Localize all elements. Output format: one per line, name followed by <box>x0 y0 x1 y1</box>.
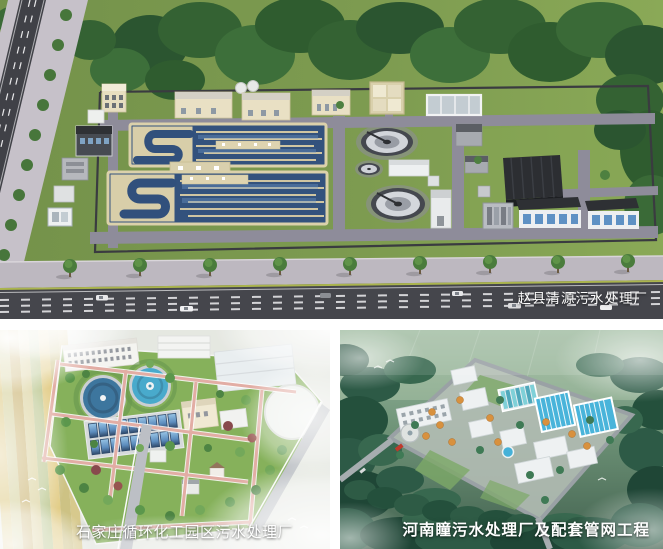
oxidation-basin-2 <box>108 172 327 224</box>
br-round-pool <box>503 447 514 458</box>
oxidation-basin-1 <box>130 124 326 166</box>
render-henan-plant: 河南瞳污水处理厂及配套管网工程 <box>340 330 663 549</box>
caption-shijiazhuang-plant: 石家庄循环化工园区污水处理厂 <box>76 521 293 542</box>
br-blue-basin-1 <box>535 392 575 432</box>
br-blue-basin-2 <box>574 398 618 437</box>
render-zhaoxian-plant: 赵县清源污水处理厂 <box>0 0 663 319</box>
flat-settling-basins <box>427 95 481 115</box>
project-renderings-collage: 赵县清源污水处理厂 <box>0 0 663 549</box>
caption-henan-plant: 河南瞳污水处理厂及配套管网工程 <box>402 518 650 540</box>
grid-tank <box>370 82 404 114</box>
render-shijiazhuang-plant: 石家庄循环化工园区污水处理厂 <box>0 330 330 549</box>
caption-zhaoxian-plant: 赵县清源污水处理厂 <box>518 287 649 307</box>
blue-window-building-2 <box>585 198 639 229</box>
bl-haze <box>0 330 330 549</box>
blue-window-building-1 <box>516 197 581 228</box>
henan-scene <box>340 330 663 549</box>
shijiazhuang-scene <box>0 330 330 549</box>
filter-unit <box>483 203 513 229</box>
zhaoxian-scene <box>0 0 663 319</box>
